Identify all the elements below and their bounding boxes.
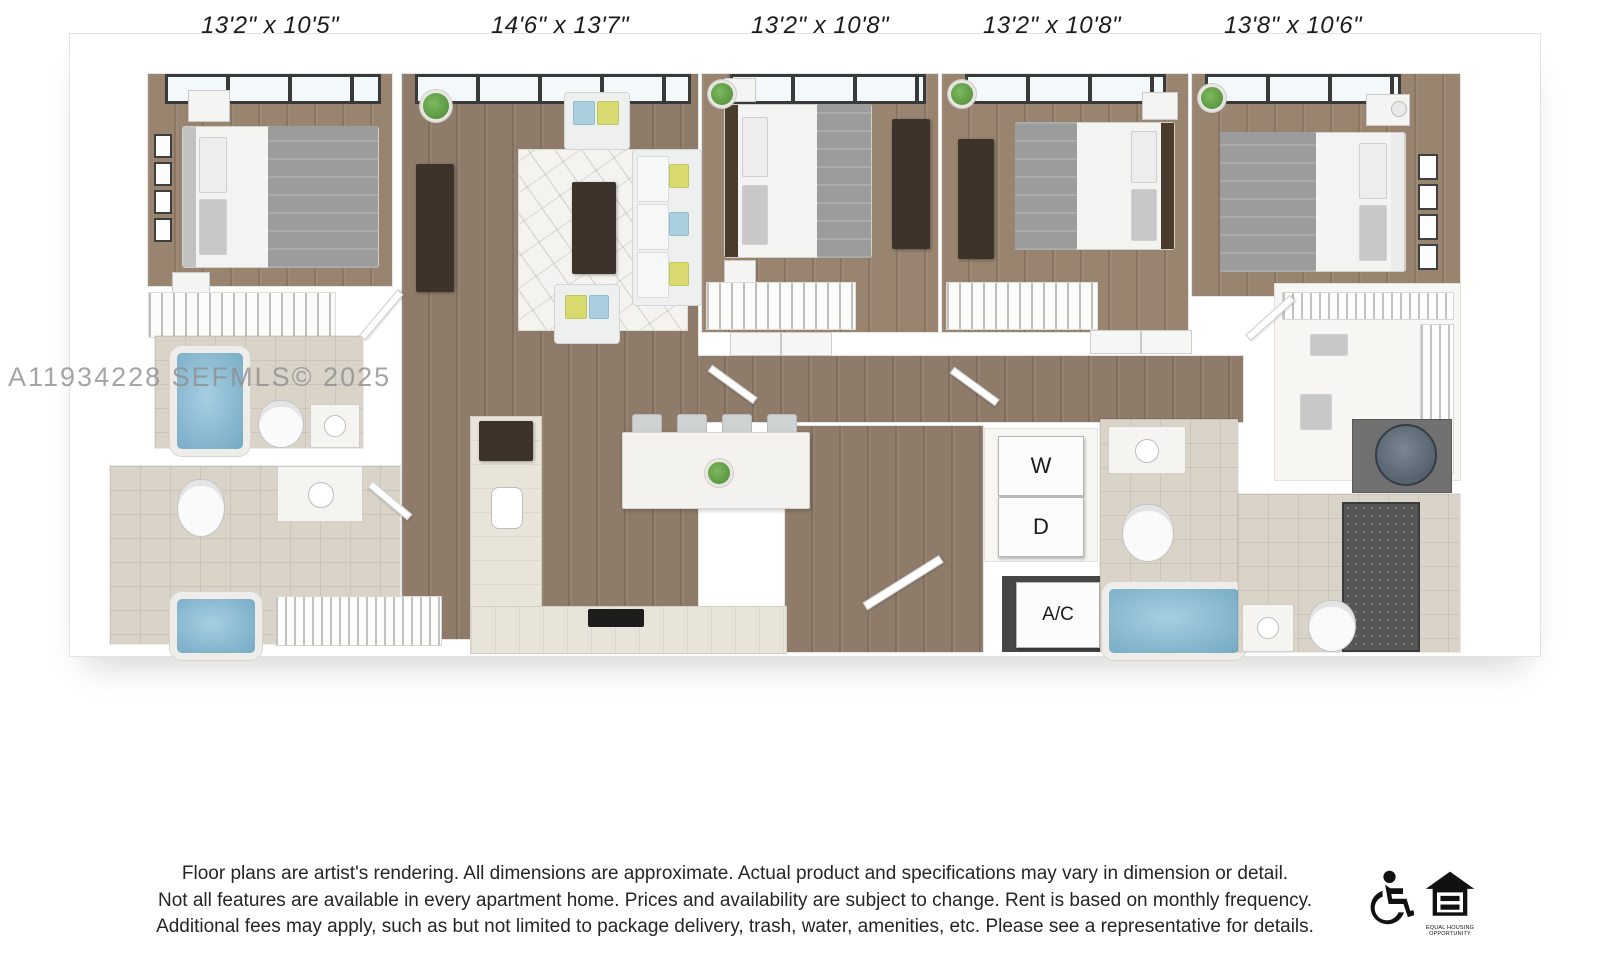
bed-pillow — [1131, 189, 1157, 241]
bed-pillow — [1359, 143, 1387, 199]
bathroom3-toilet — [1122, 504, 1174, 562]
bed-pillow — [742, 117, 768, 177]
bathroom3-vanity — [1108, 426, 1186, 474]
bedroom3-bed — [1015, 122, 1175, 250]
refrigerator — [479, 421, 533, 461]
washer: W — [998, 436, 1084, 496]
equal-housing-caption-line2: OPPORTUNITY — [1424, 931, 1476, 937]
bed-headboard — [183, 127, 196, 267]
wall-art-frame — [1418, 244, 1438, 270]
potted-plant — [708, 80, 736, 108]
disclaimer-line-2: Not all features are available in every … — [120, 888, 1350, 915]
bedroom4-bed — [1220, 132, 1406, 272]
bedroom2-bed — [724, 104, 872, 258]
bedroom4-nightstand — [1366, 94, 1410, 126]
coffee-table — [572, 182, 616, 274]
disclaimer-text: Floor plans are artist's rendering. All … — [120, 861, 1350, 941]
table-lamp — [1391, 101, 1407, 117]
bathroom2-toilet — [177, 479, 225, 537]
accent-pillow — [669, 212, 689, 236]
dryer: D — [998, 497, 1084, 557]
potted-plant — [420, 90, 452, 122]
bedroom2-dresser — [730, 332, 832, 356]
kitchen-sink — [491, 487, 523, 529]
vanity-sink — [308, 482, 334, 508]
bathroom1-toilet — [258, 400, 304, 448]
potted-plant — [948, 80, 976, 108]
accent-pillow — [597, 101, 619, 125]
stored-clothes — [1310, 334, 1348, 356]
tv-console — [416, 164, 454, 292]
wall-art-frame — [1418, 184, 1438, 210]
bed-duvet — [1015, 122, 1077, 250]
accent-pillow — [565, 295, 587, 319]
living-window — [415, 74, 691, 104]
bed-pillow — [742, 185, 768, 245]
bedroom3-tv-console — [958, 139, 994, 259]
accent-pillow — [669, 262, 689, 286]
bed-duvet — [817, 104, 871, 258]
disclaimer-line-3: Additional fees may apply, such as but n… — [120, 914, 1350, 941]
bathroom4-toilet — [1308, 600, 1356, 652]
wheelchair-icon — [1358, 866, 1414, 933]
floor-plan-page: 13'2" x 10'5" 14'6" x 13'7" 13'2" x 10'8… — [0, 0, 1600, 976]
bathroom2-bathtub — [170, 592, 262, 660]
accent-pillow — [589, 295, 609, 319]
armchair — [564, 92, 630, 150]
bed-headboard — [725, 105, 738, 257]
sofa — [632, 149, 702, 306]
equal-housing-icon: EQUAL HOUSING OPPORTUNITY — [1424, 870, 1476, 937]
closet-wire-shelf — [1282, 292, 1454, 320]
bed-duvet — [268, 126, 378, 268]
dryer-label: D — [1033, 514, 1049, 540]
linen-closet-shelf — [275, 596, 442, 646]
water-heater — [1375, 424, 1437, 486]
wall-art-frame — [154, 218, 172, 242]
bathroom2-vanity — [277, 466, 363, 522]
kitchen-counter-left — [470, 416, 542, 634]
kitchen-island — [622, 432, 810, 509]
vanity-sink — [1257, 617, 1279, 639]
bathroom1-vanity — [310, 404, 360, 448]
armchair — [554, 284, 620, 344]
stored-clothes — [1300, 394, 1332, 430]
floor-plan-rendering: W D A/C — [70, 34, 1540, 656]
island-plant — [705, 459, 733, 487]
sofa-cushion — [637, 156, 669, 202]
wall-art-frame — [1418, 214, 1438, 240]
disclaimer-line-1: Floor plans are artist's rendering. All … — [120, 861, 1350, 888]
wall-art-frame — [154, 190, 172, 214]
bedroom1-nightstand — [188, 90, 230, 122]
bedroom1-bed — [182, 126, 379, 268]
bar-stool — [632, 414, 662, 434]
accent-pillow — [669, 164, 689, 188]
footer-icons: EQUAL HOUSING OPPORTUNITY — [1358, 862, 1488, 942]
sofa-cushion — [637, 252, 669, 298]
wall-art-frame — [1418, 154, 1438, 180]
bedroom3-nightstand — [1142, 92, 1178, 120]
ac-unit: A/C — [1016, 582, 1100, 648]
bedroom3-closet — [946, 282, 1098, 330]
bed-headboard — [1161, 123, 1174, 249]
bathroom3-bathtub — [1102, 582, 1246, 660]
bathroom4-vanity — [1242, 604, 1294, 652]
bar-stool — [722, 414, 752, 434]
cooktop — [588, 609, 644, 627]
bed-pillow — [1131, 131, 1157, 183]
kitchen-counter-bottom — [470, 606, 787, 654]
bedroom1-closet — [148, 292, 336, 338]
bedroom2-dresser-tall — [892, 119, 930, 249]
washer-label: W — [1031, 453, 1052, 479]
bed-pillow — [1359, 205, 1387, 261]
vanity-sink — [324, 415, 346, 437]
bedroom2-closet — [706, 282, 856, 330]
bedroom2-window — [730, 74, 926, 104]
vanity-sink — [1135, 439, 1159, 463]
bar-stool — [677, 414, 707, 434]
bedroom3-dresser — [1090, 330, 1192, 354]
potted-plant — [1198, 84, 1226, 112]
sofa-cushion — [637, 204, 669, 250]
mls-watermark: A11934228 SEFMLS© 2025 — [8, 362, 391, 393]
bedroom2-nightstand — [724, 260, 756, 284]
bed-duvet — [1220, 132, 1316, 272]
entry-foyer-floor — [785, 426, 983, 652]
ac-label: A/C — [1042, 604, 1074, 626]
bedroom1-door — [359, 289, 404, 340]
accent-pillow — [573, 101, 595, 125]
wall-art-frame — [154, 134, 172, 158]
bed-headboard — [1391, 133, 1405, 271]
bedroom3-window — [965, 74, 1166, 104]
bed-pillow — [199, 137, 227, 193]
bed-pillow — [199, 199, 227, 255]
wall-art-frame — [154, 162, 172, 186]
bar-stool — [767, 414, 797, 434]
